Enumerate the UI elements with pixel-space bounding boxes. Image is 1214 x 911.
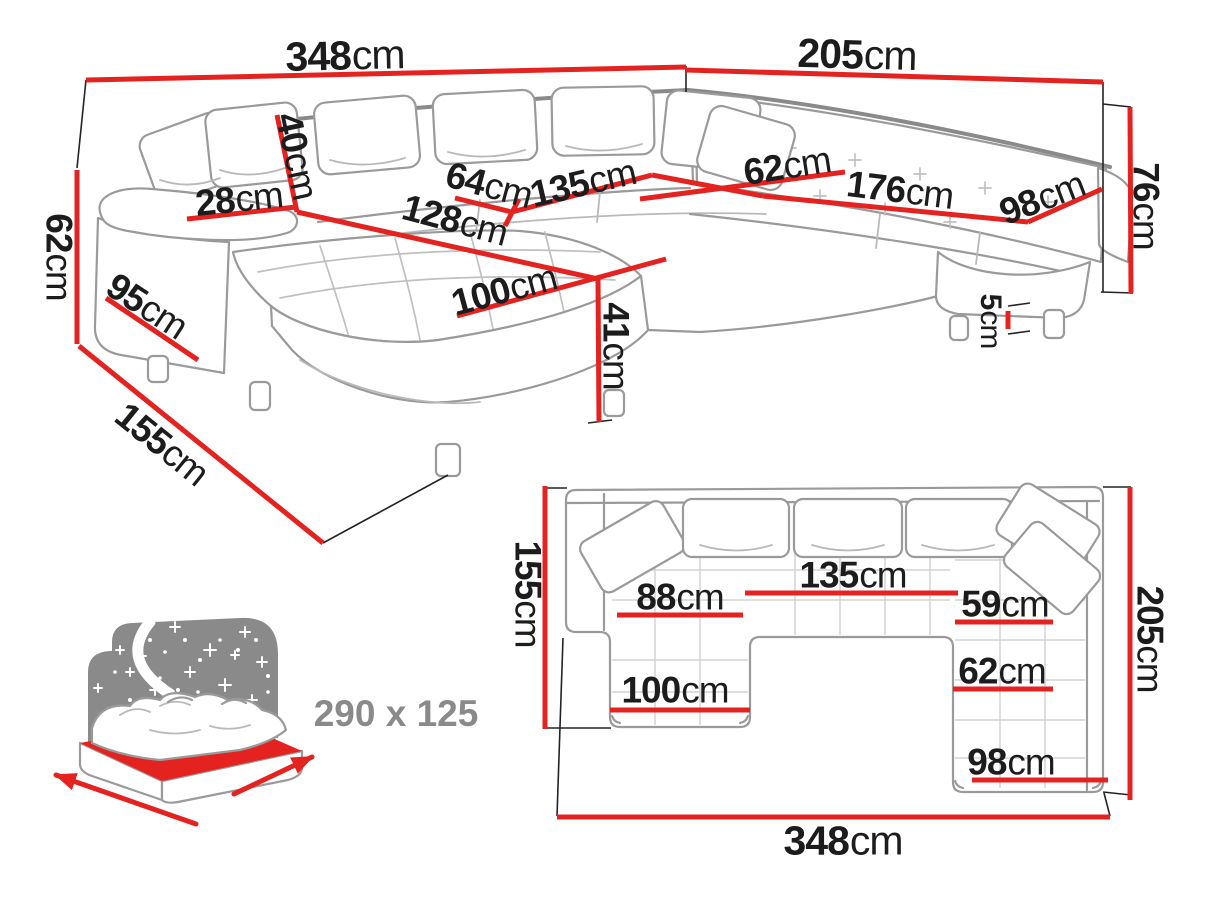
dim-persp-right-width: 205cm bbox=[797, 33, 917, 77]
dim-plan-middle-seat-width: 135cm bbox=[799, 557, 906, 594]
dim-plan-total-width: 348cm bbox=[783, 821, 902, 862]
dim-plan-end-seat-width: 98cm bbox=[967, 744, 1054, 781]
sleeping-size-label: 290 x 125 bbox=[314, 693, 479, 735]
dim-persp-arm-top-depth: 28cm bbox=[194, 176, 285, 222]
dim-persp-seat-height: 41cm bbox=[598, 302, 635, 389]
dim-plan-right-top-seat-width: 59cm bbox=[961, 586, 1048, 623]
sofa-perspective-sketch bbox=[95, 86, 1132, 476]
dim-plan-chaise-seat-width: 88cm bbox=[636, 579, 723, 616]
dim-persp-total-width: 348cm bbox=[285, 34, 405, 78]
dim-plan-chaise-width: 100cm bbox=[621, 672, 728, 709]
dim-persp-leg-height: 5cm bbox=[975, 294, 1005, 349]
dim-plan-right-seat-depth: 62cm bbox=[958, 653, 1045, 690]
dim-plan-right-depth: 205cm bbox=[1132, 585, 1169, 692]
dim-persp-back-height: 76cm bbox=[1128, 162, 1165, 249]
dim-persp-arm-height: 62cm bbox=[41, 213, 78, 300]
dim-plan-left-depth: 155cm bbox=[510, 540, 547, 647]
diagram-canvas: 348cm 205cm 62cm 95cm 155cm 28cm 40cm 64… bbox=[0, 0, 1214, 911]
sleeper-bed-icon bbox=[56, 618, 312, 824]
